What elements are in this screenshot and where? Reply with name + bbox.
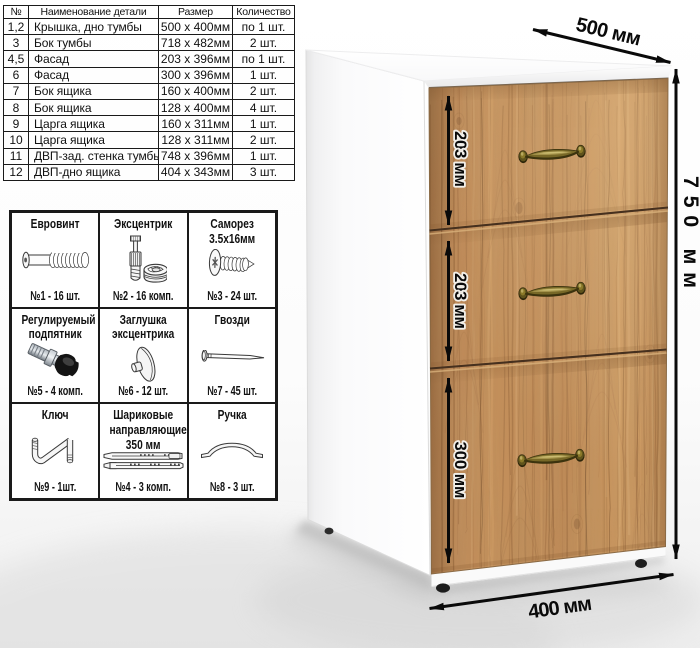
svg-text:203 мм: 203 мм — [451, 131, 470, 187]
svg-text:300 мм: 300 мм — [451, 442, 470, 499]
svg-text:203 мм: 203 мм — [451, 273, 470, 329]
